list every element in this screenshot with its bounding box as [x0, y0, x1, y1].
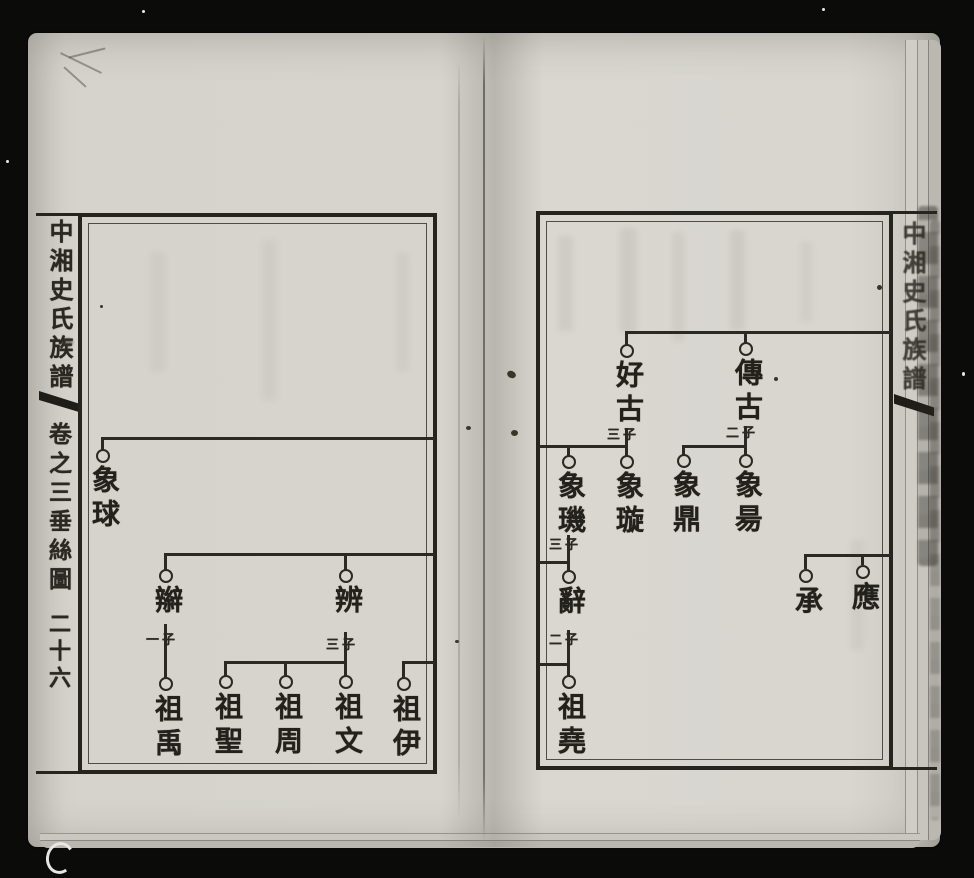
connector-line [539, 561, 570, 564]
right-page-inner-frame [546, 221, 883, 760]
chart-type-label: 垂絲圖 [46, 509, 71, 596]
sons-count-label: 二子 [549, 629, 581, 648]
person-node-circle [562, 675, 576, 689]
person-name: 應 [849, 582, 877, 616]
ink-speck [63, 338, 73, 347]
book-title-left-margin: 中湘史氏族譜 [46, 219, 70, 393]
person-name: 好古 [613, 360, 641, 428]
connector-line [625, 331, 891, 334]
person-name: 象球 [89, 465, 117, 533]
person-node-circle [799, 569, 813, 583]
person-name: 祖伊 [390, 694, 418, 762]
person-name: 傳古 [732, 358, 760, 426]
person-name: 祖文 [332, 692, 360, 760]
volume-label: 卷之三 [46, 422, 71, 509]
dust-speck [6, 160, 9, 163]
connector-line [625, 331, 628, 345]
person-name: 辮 [152, 585, 180, 619]
person-name: 祖堯 [555, 692, 583, 760]
connector-line [804, 554, 807, 569]
sons-count-label: 二子 [726, 422, 758, 441]
ink-speck [455, 640, 459, 643]
person-node-circle [96, 449, 110, 463]
person-node-circle [739, 342, 753, 356]
person-name: 辭 [555, 586, 583, 620]
person-node-circle [562, 455, 576, 469]
connector-line [402, 661, 405, 678]
ink-speck [774, 377, 778, 381]
book-gutter-shadow [440, 33, 544, 847]
person-node-circle [562, 570, 576, 584]
person-node-circle [339, 675, 353, 689]
gutter-crease-line [483, 36, 485, 842]
person-name: 辨 [332, 585, 360, 619]
person-name: 象璣 [555, 471, 583, 539]
person-node-circle [159, 677, 173, 691]
person-name: 祖禹 [152, 694, 180, 762]
person-node-circle [219, 675, 233, 689]
connector-line [539, 663, 570, 666]
person-node-circle [620, 455, 634, 469]
dust-speck [962, 372, 965, 376]
person-name: 承 [792, 586, 820, 620]
photo-backdrop: 中湘史氏族譜 卷之三垂絲圖 二十六 象球 辮 一子 辨 三子 祖禹 祖聖 祖周 … [0, 0, 974, 878]
person-node-circle [339, 569, 353, 583]
dust-speck [142, 10, 145, 13]
sons-count-label: 三子 [326, 634, 358, 653]
person-node-circle [856, 565, 870, 579]
left-page-inner-frame [88, 223, 427, 764]
page-number: 二十六 [47, 612, 69, 693]
connector-line [101, 437, 435, 440]
person-node-circle [677, 454, 691, 468]
connector-line [402, 661, 435, 664]
connector-line [344, 553, 347, 570]
sons-count-label: 三子 [607, 424, 639, 443]
person-name: 象鼎 [670, 470, 698, 538]
gutter-crease-line [458, 60, 460, 820]
person-node-circle [279, 675, 293, 689]
dust-speck [822, 8, 825, 11]
sons-count-label: 三子 [549, 534, 581, 553]
ink-speck [466, 426, 471, 430]
volume-chart-label: 卷之三垂絲圖 [47, 422, 70, 596]
person-node-circle [397, 677, 411, 691]
person-name: 祖周 [272, 692, 300, 760]
connector-line [539, 445, 628, 448]
connector-line [164, 553, 167, 570]
person-node-circle [159, 569, 173, 583]
connector-line [861, 554, 864, 565]
connector-line [682, 445, 747, 448]
connector-line [164, 553, 435, 556]
person-node-circle [739, 454, 753, 468]
connector-line [804, 554, 891, 557]
person-node-circle [620, 344, 634, 358]
person-name: 象昜 [732, 470, 760, 538]
ink-speck [511, 430, 518, 436]
ink-speck [877, 285, 882, 290]
ink-smudge [930, 220, 940, 820]
sons-count-label: 一子 [146, 629, 178, 648]
person-name: 祖聖 [212, 692, 240, 760]
ink-speck [100, 305, 103, 308]
person-name: 象璇 [613, 471, 641, 539]
